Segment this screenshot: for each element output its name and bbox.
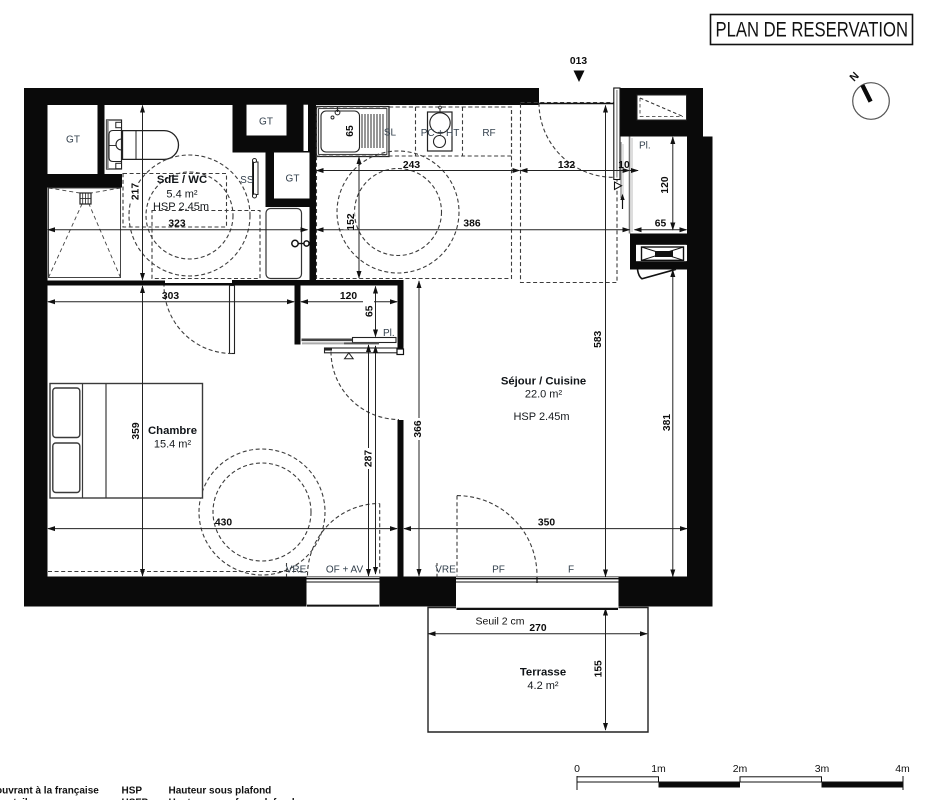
svg-text:22.0 m²: 22.0 m² [525, 389, 563, 401]
svg-text:15.4 m²: 15.4 m² [154, 439, 192, 451]
svg-text:Seuil 2 cm: Seuil 2 cm [475, 616, 524, 628]
svg-text:3m: 3m [815, 763, 830, 775]
svg-text:65: 65 [345, 125, 356, 137]
svg-text:155: 155 [594, 660, 605, 677]
svg-text:PF: PF [492, 565, 505, 576]
svg-text:RF: RF [482, 128, 495, 139]
svg-text:386: 386 [463, 219, 480, 230]
svg-text:152: 152 [346, 213, 357, 230]
svg-text:430: 430 [215, 518, 232, 529]
svg-text:132: 132 [558, 160, 575, 171]
svg-text:HSP: HSP [122, 786, 143, 797]
svg-text:217: 217 [131, 183, 142, 200]
svg-text:381: 381 [662, 414, 673, 431]
svg-text:0: 0 [574, 763, 580, 775]
svg-text:10: 10 [618, 160, 630, 171]
svg-text:287: 287 [364, 450, 375, 467]
svg-text:5.4 m²: 5.4 m² [166, 189, 198, 201]
svg-text:GT: GT [286, 174, 300, 185]
svg-text:Séjour / Cuisine: Séjour / Cuisine [501, 376, 586, 388]
svg-text:4m: 4m [895, 763, 910, 775]
svg-text:013: 013 [570, 56, 587, 67]
svg-text:N: N [848, 70, 862, 84]
svg-text:ouvrant à la française: ouvrant à la française [0, 786, 99, 797]
svg-text:359: 359 [131, 422, 142, 439]
svg-text:OF + AV: OF + AV [326, 565, 364, 576]
svg-text:HSP 2.45m: HSP 2.45m [513, 411, 569, 423]
svg-text:GT: GT [259, 117, 273, 128]
svg-text:GT: GT [66, 135, 80, 146]
svg-text:65: 65 [364, 305, 375, 317]
svg-text:Pl.: Pl. [639, 141, 651, 152]
svg-text:366: 366 [413, 420, 424, 437]
svg-text:120: 120 [340, 291, 357, 302]
svg-text:2m: 2m [733, 763, 748, 775]
svg-text:120: 120 [660, 176, 671, 193]
svg-text:SL: SL [384, 128, 397, 139]
svg-text:4.2 m²: 4.2 m² [527, 680, 559, 692]
svg-text:HSP 2.45m: HSP 2.45m [153, 201, 209, 213]
svg-text:65: 65 [655, 219, 667, 230]
svg-text:Terrasse: Terrasse [520, 667, 566, 679]
svg-text:F: F [568, 565, 574, 576]
svg-text:VRE: VRE [286, 565, 307, 576]
svg-text:323: 323 [168, 219, 185, 230]
svg-text:303: 303 [162, 291, 179, 302]
svg-text:Hauteur sous plafond: Hauteur sous plafond [169, 786, 272, 797]
svg-text:243: 243 [403, 160, 420, 171]
svg-text:VRE: VRE [435, 565, 456, 576]
svg-text:350: 350 [538, 518, 555, 529]
svg-text:PC + HT: PC + HT [421, 128, 460, 139]
svg-text:Chambre: Chambre [148, 425, 197, 437]
svg-text:583: 583 [593, 330, 604, 347]
svg-text:SS: SS [240, 175, 254, 186]
svg-text:PLAN DE RESERVATION: PLAN DE RESERVATION [716, 19, 909, 42]
svg-text:Pl.: Pl. [383, 328, 395, 339]
svg-text:1m: 1m [651, 763, 666, 775]
svg-text:SdE / WC: SdE / WC [157, 174, 207, 186]
svg-text:270: 270 [529, 623, 546, 634]
